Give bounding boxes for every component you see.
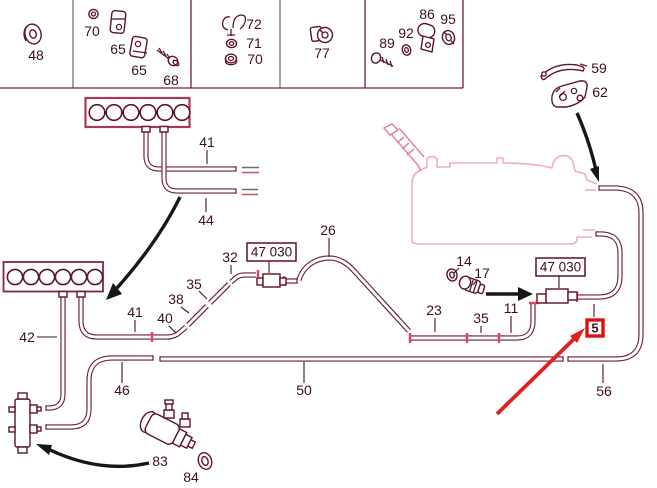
nut-95-icon xyxy=(440,29,456,46)
part-label-26: 26 xyxy=(320,222,336,238)
pipe-32 xyxy=(231,275,256,282)
grommet-48-icon xyxy=(23,22,44,45)
pipe-38 xyxy=(188,306,207,325)
pipe-40 xyxy=(153,327,186,337)
pipe-41-upper xyxy=(146,131,236,169)
clamp-86-icon xyxy=(416,22,436,52)
part-label-50: 50 xyxy=(296,382,312,398)
part-label-23: 23 xyxy=(426,302,442,318)
arrow-17-to-valve xyxy=(486,287,533,301)
part-label-42: 42 xyxy=(19,329,35,345)
part-label-89: 89 xyxy=(379,35,395,51)
oil-filler-neck xyxy=(384,124,424,171)
part-label-32: 32 xyxy=(222,249,238,265)
part-label-95: 95 xyxy=(440,11,456,27)
part-label-40: 40 xyxy=(157,310,173,326)
part-label-11: 11 xyxy=(504,300,519,316)
arrow-62-to-pipe xyxy=(577,113,599,182)
callout-badge-5[interactable]: 5 xyxy=(587,320,603,336)
part-label-92: 92 xyxy=(398,25,414,41)
cylinder-head-block-upper xyxy=(86,98,190,132)
pipes xyxy=(46,131,641,430)
part-label-17: 17 xyxy=(474,265,490,281)
ring-71-icon xyxy=(227,39,237,47)
valve-assembly-83 xyxy=(137,400,199,455)
strap-59-icon xyxy=(541,64,587,80)
arrow-83-to-distributor xyxy=(36,444,149,466)
pipe-cut-stubs xyxy=(242,168,259,195)
black-arrows xyxy=(36,113,599,466)
part-label-44: 44 xyxy=(198,212,214,228)
badge-5-label: 5 xyxy=(591,321,598,336)
part-labels: 48 70 65 65 68 72 71 70 77 89 92 86 95 4… xyxy=(19,6,612,485)
parts-diagram-page: 5 47 030 47 030 xyxy=(0,0,657,488)
part-label-48: 48 xyxy=(28,47,44,63)
diagram-canvas: 5 47 030 47 030 xyxy=(0,0,657,488)
part-label-83: 83 xyxy=(152,453,168,469)
part-label-62: 62 xyxy=(592,84,608,100)
part-label-35-a: 35 xyxy=(186,276,202,292)
cylinder-head-block-lower xyxy=(4,262,104,297)
fuel-distributor-block xyxy=(9,393,41,453)
valve-47030-left xyxy=(257,274,286,287)
subgroup-47030-left-label: 47 030 xyxy=(251,245,292,260)
screw-68-icon xyxy=(157,48,180,68)
part-label-72: 72 xyxy=(246,16,262,32)
subgroup-box-47030-right[interactable]: 47 030 xyxy=(536,258,585,276)
part-label-41-b: 41 xyxy=(127,304,143,320)
pipe-26 xyxy=(299,258,409,331)
engine-silhouette xyxy=(384,124,597,244)
arrow-to-lower-head xyxy=(106,197,180,300)
part-label-70-a: 70 xyxy=(84,23,100,39)
clip-72-icon xyxy=(223,15,246,36)
ring-70a-icon xyxy=(89,9,98,18)
leader-lines xyxy=(37,150,603,383)
highlight-arrow-red xyxy=(497,328,585,414)
part-label-59: 59 xyxy=(591,60,607,76)
part-label-71: 71 xyxy=(246,35,262,51)
subgroup-box-47030-left[interactable]: 47 030 xyxy=(247,243,296,261)
part-label-70-b: 70 xyxy=(247,51,263,67)
washer-92-icon xyxy=(401,44,412,56)
part-label-14: 14 xyxy=(456,253,472,269)
part-label-68: 68 xyxy=(163,72,179,88)
part-label-86: 86 xyxy=(419,6,435,22)
pipe-42 xyxy=(46,297,63,408)
hose-piece-77-icon xyxy=(310,26,332,42)
part-label-65-b: 65 xyxy=(131,62,147,78)
subgroup-47030-right-label: 47 030 xyxy=(540,260,581,275)
clamp-65a-icon xyxy=(110,10,126,33)
bracket-62-icon xyxy=(552,81,587,107)
part-label-41-a: 41 xyxy=(199,134,215,150)
pipe-35-left xyxy=(210,284,229,303)
valve-47030-right xyxy=(537,289,577,303)
part-label-46: 46 xyxy=(114,382,130,398)
part-label-77: 77 xyxy=(314,45,330,61)
part-label-84: 84 xyxy=(183,469,199,485)
part-label-65-a: 65 xyxy=(110,41,126,57)
bolt-89-icon xyxy=(370,51,393,67)
nut-70b-icon xyxy=(226,54,237,65)
part-label-38: 38 xyxy=(168,291,184,307)
part-label-35-b: 35 xyxy=(473,310,489,326)
clamp-65b-icon xyxy=(129,36,147,58)
part-label-56: 56 xyxy=(596,383,612,399)
